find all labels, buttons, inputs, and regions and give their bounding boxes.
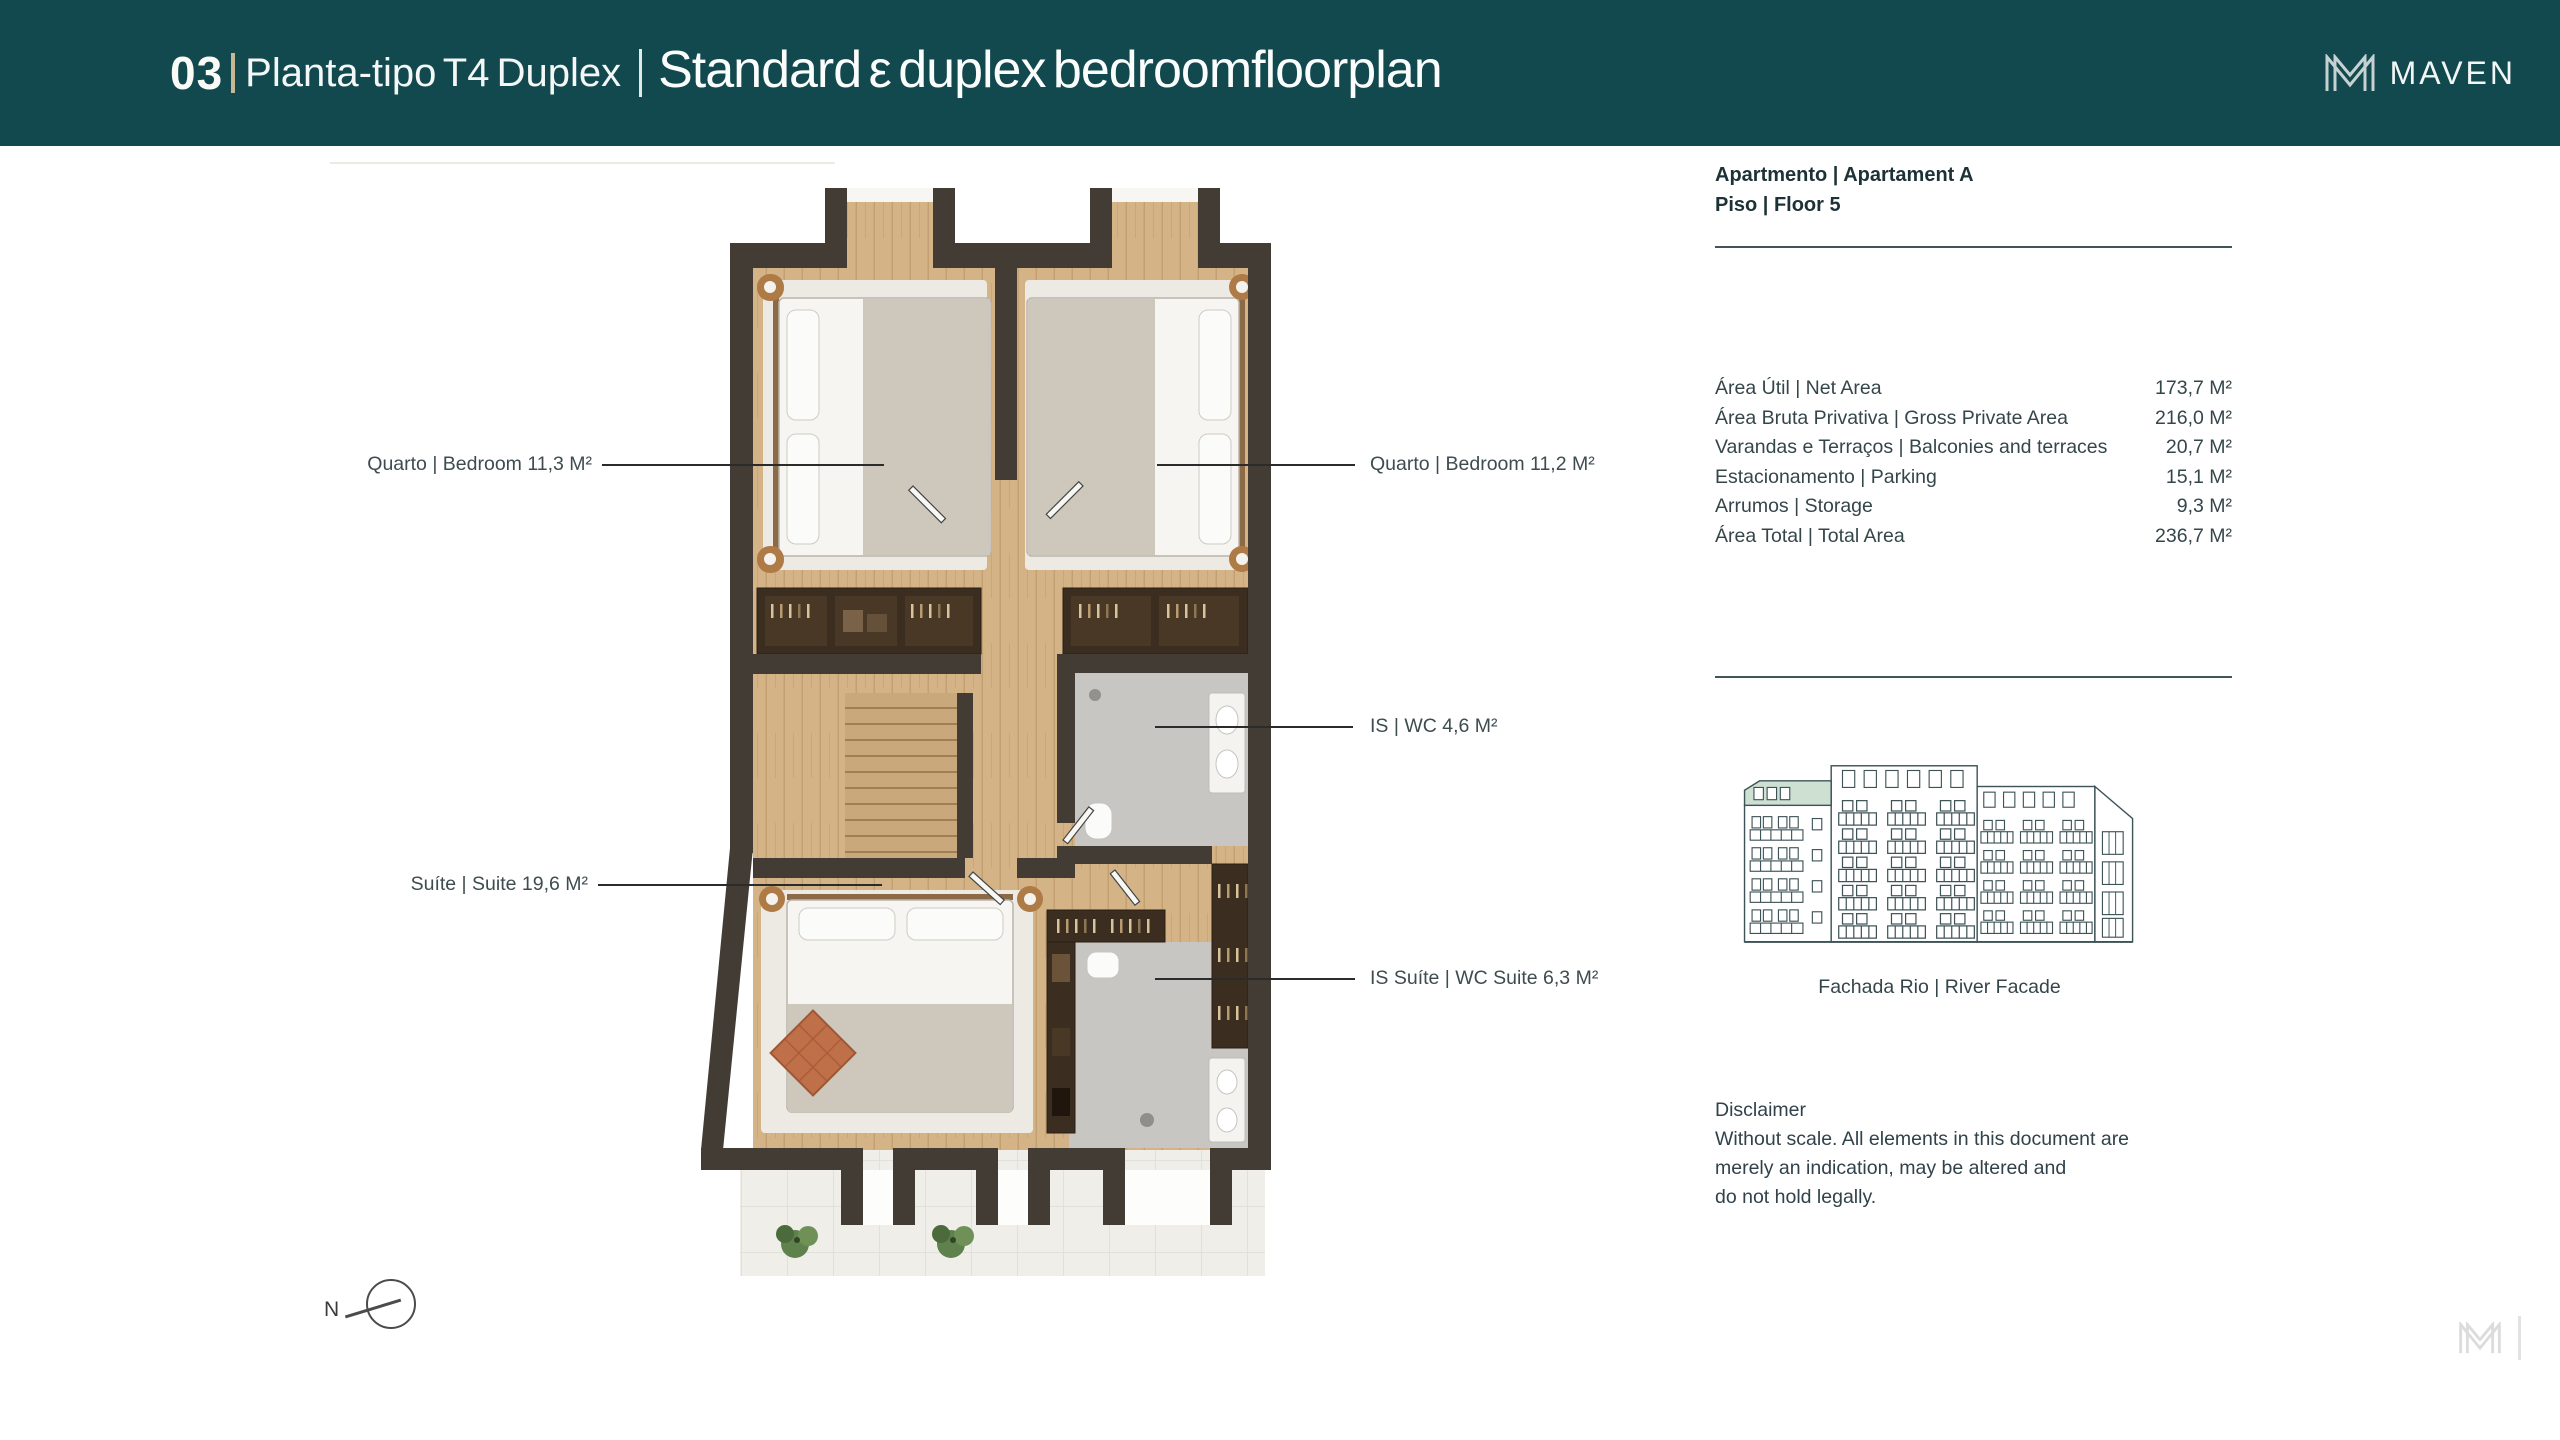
- room-label-bedroom-1: Quarto | Bedroom 11,3 M²: [320, 452, 592, 476]
- facade-caption: Fachada Rio | River Facade: [1737, 976, 2142, 999]
- table-row: Varandas e Terraços | Balconies and terr…: [1715, 433, 2232, 463]
- table-row: Área Total | Total Area 236,7 M²: [1715, 522, 2232, 552]
- panel-divider-top: [1715, 246, 2232, 248]
- maven-logo-mark: [2324, 54, 2376, 92]
- bed-bedroom-2: [1027, 274, 1255, 572]
- page-title-english: Standard ε duplex bedroomfloorplan: [658, 40, 1442, 100]
- header-white-divider: [639, 49, 642, 97]
- header-bar: 03 Planta-tipo T4 Duplex Standard ε dupl…: [0, 0, 2560, 146]
- disclaimer-block: Disclaimer Without scale. All elements i…: [1715, 1096, 2129, 1212]
- bed-bedroom-1: [757, 274, 991, 573]
- apartment-name: Apartmento | Apartament A: [1715, 160, 1974, 190]
- wardrobe-bedroom-2: [1063, 588, 1248, 654]
- area-value: 9,3 M²: [2177, 492, 2232, 522]
- apartment-floor: Piso | Floor 5: [1715, 190, 1974, 220]
- area-label: Área Útil | Net Area: [1715, 374, 1882, 404]
- area-value: 236,7 M²: [2155, 522, 2232, 552]
- disclaimer-title: Disclaimer: [1715, 1096, 2129, 1125]
- area-label: Estacionamento | Parking: [1715, 463, 1937, 493]
- table-row: Área Bruta Privativa | Gross Private Are…: [1715, 404, 2232, 434]
- brand-lockup: MAVEN: [2324, 0, 2516, 146]
- staircase: [845, 693, 957, 858]
- room-label-wc: IS | WC 4,6 M²: [1370, 714, 1498, 738]
- watermark-bar: [2518, 1316, 2521, 1360]
- area-label: Arrumos | Storage: [1715, 492, 1873, 522]
- area-value: 173,7 M²: [2155, 374, 2232, 404]
- leader-line-wc: [1155, 726, 1353, 728]
- area-table: Área Útil | Net Area 173,7 M² Área Bruta…: [1715, 374, 2232, 551]
- leader-line-bedroom-2: [1157, 464, 1355, 466]
- leader-line-suite: [598, 884, 882, 886]
- slide-number: 03: [170, 46, 223, 100]
- area-value: 216,0 M²: [2155, 404, 2232, 434]
- page-title-portuguese: Planta-tipo T4 Duplex: [245, 51, 621, 96]
- leader-line-bedroom-1: [602, 464, 884, 466]
- leader-line-wc-suite: [1155, 978, 1355, 980]
- wardrobe-bedroom-1: [757, 588, 981, 654]
- disclaimer-line: Without scale. All elements in this docu…: [1715, 1125, 2129, 1154]
- maven-logo-mark-watermark: [2458, 1322, 2502, 1354]
- area-value: 20,7 M²: [2166, 433, 2232, 463]
- disclaimer-line: do not hold legally.: [1715, 1183, 2129, 1212]
- area-label: Área Bruta Privativa | Gross Private Are…: [1715, 404, 2068, 434]
- header-tan-divider: [231, 53, 235, 93]
- room-label-wc-suite: IS Suíte | WC Suite 6,3 M²: [1370, 966, 1598, 990]
- table-row: Arrumos | Storage 9,3 M²: [1715, 492, 2232, 522]
- compass-north-label: N: [324, 1298, 339, 1322]
- table-row: Estacionamento | Parking 15,1 M²: [1715, 463, 2232, 493]
- disclaimer-line: merely an indication, may be altered and: [1715, 1154, 2129, 1183]
- facade-illustration: [1737, 752, 2142, 967]
- room-label-bedroom-2: Quarto | Bedroom 11,2 M²: [1370, 452, 1595, 476]
- apartment-heading: Apartmento | Apartament A Piso | Floor 5: [1715, 160, 1974, 220]
- room-label-suite: Suíte | Suite 19,6 M²: [316, 872, 588, 896]
- table-row: Área Útil | Net Area 173,7 M²: [1715, 374, 2232, 404]
- area-value: 15,1 M²: [2166, 463, 2232, 493]
- slide-page: 03 Planta-tipo T4 Duplex Standard ε dupl…: [0, 0, 2560, 1440]
- brand-name: MAVEN: [2390, 55, 2516, 92]
- panel-divider-bottom: [1715, 676, 2232, 678]
- area-label: Área Total | Total Area: [1715, 522, 1905, 552]
- area-label: Varandas e Terraços | Balconies and terr…: [1715, 433, 2107, 463]
- floorplan-rendering: [695, 148, 1295, 1288]
- maven-watermark: [2458, 1316, 2521, 1360]
